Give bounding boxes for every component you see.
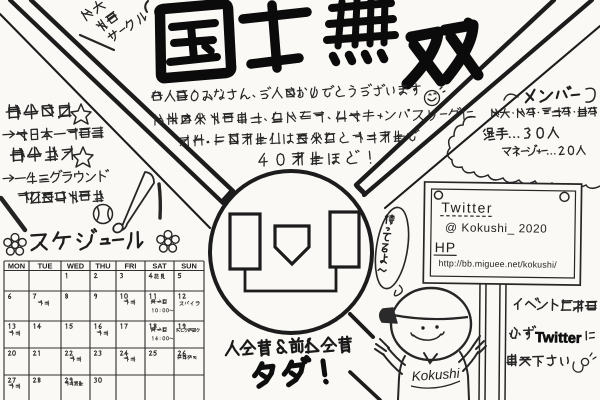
svg-text:MON: MON: [8, 261, 25, 270]
svg-text:SUN: SUN: [181, 261, 197, 270]
svg-text:THU: THU: [95, 261, 110, 270]
svg-text:WED: WED: [67, 261, 85, 270]
svg-text:@ Kokushi_ 2020: @ Kokushi_ 2020: [445, 220, 547, 235]
svg-text:Twitter: Twitter: [441, 199, 493, 216]
svg-text:SAT: SAT: [152, 261, 167, 270]
svg-text:FRI: FRI: [125, 261, 137, 270]
svg-text:HP: HP: [435, 239, 457, 255]
svg-text:Twitter: Twitter: [535, 330, 582, 347]
svg-text:TUE: TUE: [38, 261, 53, 270]
svg-text:http://bb.miguee.net/kokushi/: http://bb.miguee.net/kokushi/: [438, 258, 557, 270]
